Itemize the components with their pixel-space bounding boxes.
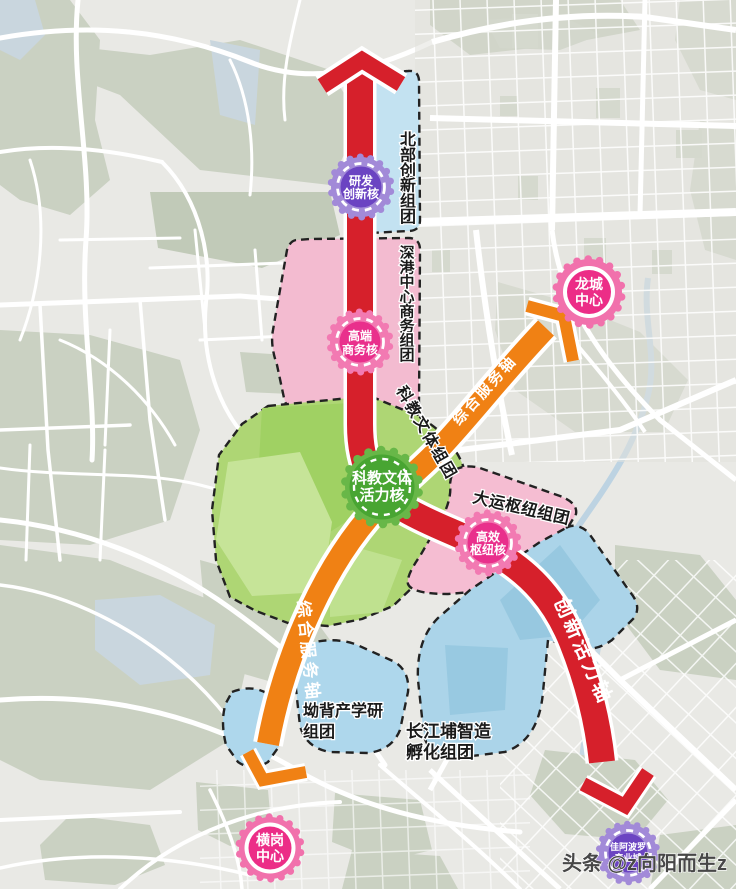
svg-text:深港中心商务组团: 深港中心商务组团 bbox=[399, 244, 415, 364]
svg-text:中心: 中心 bbox=[256, 848, 284, 864]
svg-text:北部创新组团: 北部创新组团 bbox=[399, 131, 416, 226]
svg-text:孵化组团: 孵化组团 bbox=[406, 742, 474, 762]
svg-text:创新核: 创新核 bbox=[342, 186, 379, 201]
svg-text:高效: 高效 bbox=[476, 529, 501, 544]
svg-text:坳背产学研: 坳背产学研 bbox=[303, 701, 383, 720]
svg-text:研发: 研发 bbox=[349, 173, 374, 188]
svg-text:科教文体: 科教文体 bbox=[352, 469, 413, 487]
svg-text:商务核: 商务核 bbox=[342, 342, 378, 357]
svg-text:高端: 高端 bbox=[348, 328, 372, 343]
svg-text:龙城: 龙城 bbox=[574, 276, 603, 292]
svg-text:枢纽核: 枢纽核 bbox=[470, 542, 506, 557]
svg-text:横岗: 横岗 bbox=[256, 832, 284, 848]
svg-text:佳阿波罗: 佳阿波罗 bbox=[610, 841, 646, 852]
svg-text:组团: 组团 bbox=[303, 722, 335, 741]
svg-text:长江埔智造: 长江埔智造 bbox=[406, 721, 492, 741]
svg-text:中心: 中心 bbox=[575, 292, 603, 308]
svg-text:头条 @z向阳而生z: 头条 @z向阳而生z bbox=[562, 851, 727, 875]
svg-text:活力核: 活力核 bbox=[359, 486, 404, 504]
